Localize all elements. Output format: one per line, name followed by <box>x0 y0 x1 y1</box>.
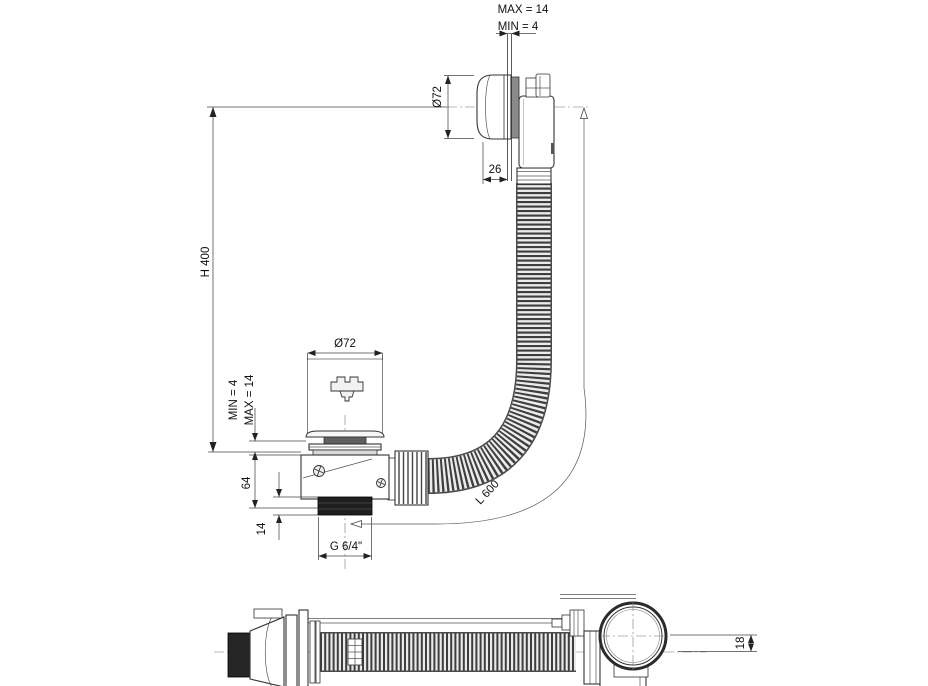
drain-seal <box>313 450 377 455</box>
label-cap-offset: 18 <box>735 637 747 650</box>
label-floor-min: MIN = 4 <box>228 379 240 420</box>
plan-flange-2 <box>299 610 308 686</box>
label-drain-diameter: Ø72 <box>334 338 356 350</box>
plan-thread <box>228 633 250 677</box>
overflow-body <box>519 96 554 168</box>
overflow-cap <box>477 75 511 139</box>
plan-flange-1 <box>286 615 297 686</box>
label-body-height: 64 <box>241 476 253 489</box>
labels: MAX = 14 MIN = 4 Ø72 26 H 400 Ø72 MIN = … <box>200 4 747 649</box>
label-install-height: H 400 <box>200 247 212 278</box>
drain-assembly <box>301 359 428 515</box>
plan-cable-fitting <box>570 610 584 636</box>
overflow-knob-right <box>536 74 550 97</box>
plug-key-icon <box>331 377 363 401</box>
overflow-assembly <box>477 34 555 184</box>
drawing-canvas: MAX = 14 MIN = 4 Ø72 26 H 400 Ø72 MIN = … <box>0 0 928 686</box>
drain-cap <box>306 431 384 437</box>
drain-cap-ring <box>324 437 366 444</box>
drain-thread <box>318 497 372 515</box>
bath-waste-technical-drawing: MAX = 14 MIN = 4 Ø72 26 H 400 Ø72 MIN = … <box>0 0 928 686</box>
label-wall-max: MAX = 14 <box>498 4 549 16</box>
hose-nut <box>395 451 428 505</box>
drain-body <box>301 455 389 499</box>
plan-view <box>214 595 757 686</box>
overflow-body-clip <box>551 143 555 154</box>
label-floor-max: MAX = 14 <box>244 374 256 425</box>
datum-arrow <box>351 521 362 528</box>
label-thread-size: G 6/4" <box>330 541 362 553</box>
label-overflow-projection: 26 <box>489 164 502 176</box>
label-overflow-diameter: Ø72 <box>432 86 444 108</box>
label-wall-min: MIN = 4 <box>498 21 539 33</box>
hose-body <box>428 183 534 476</box>
flexible-hose <box>428 183 534 476</box>
overflow-gasket <box>511 77 519 138</box>
label-thread-length: 14 <box>256 522 268 535</box>
plan-tail-body <box>250 617 284 686</box>
datum-arrow <box>581 108 588 119</box>
